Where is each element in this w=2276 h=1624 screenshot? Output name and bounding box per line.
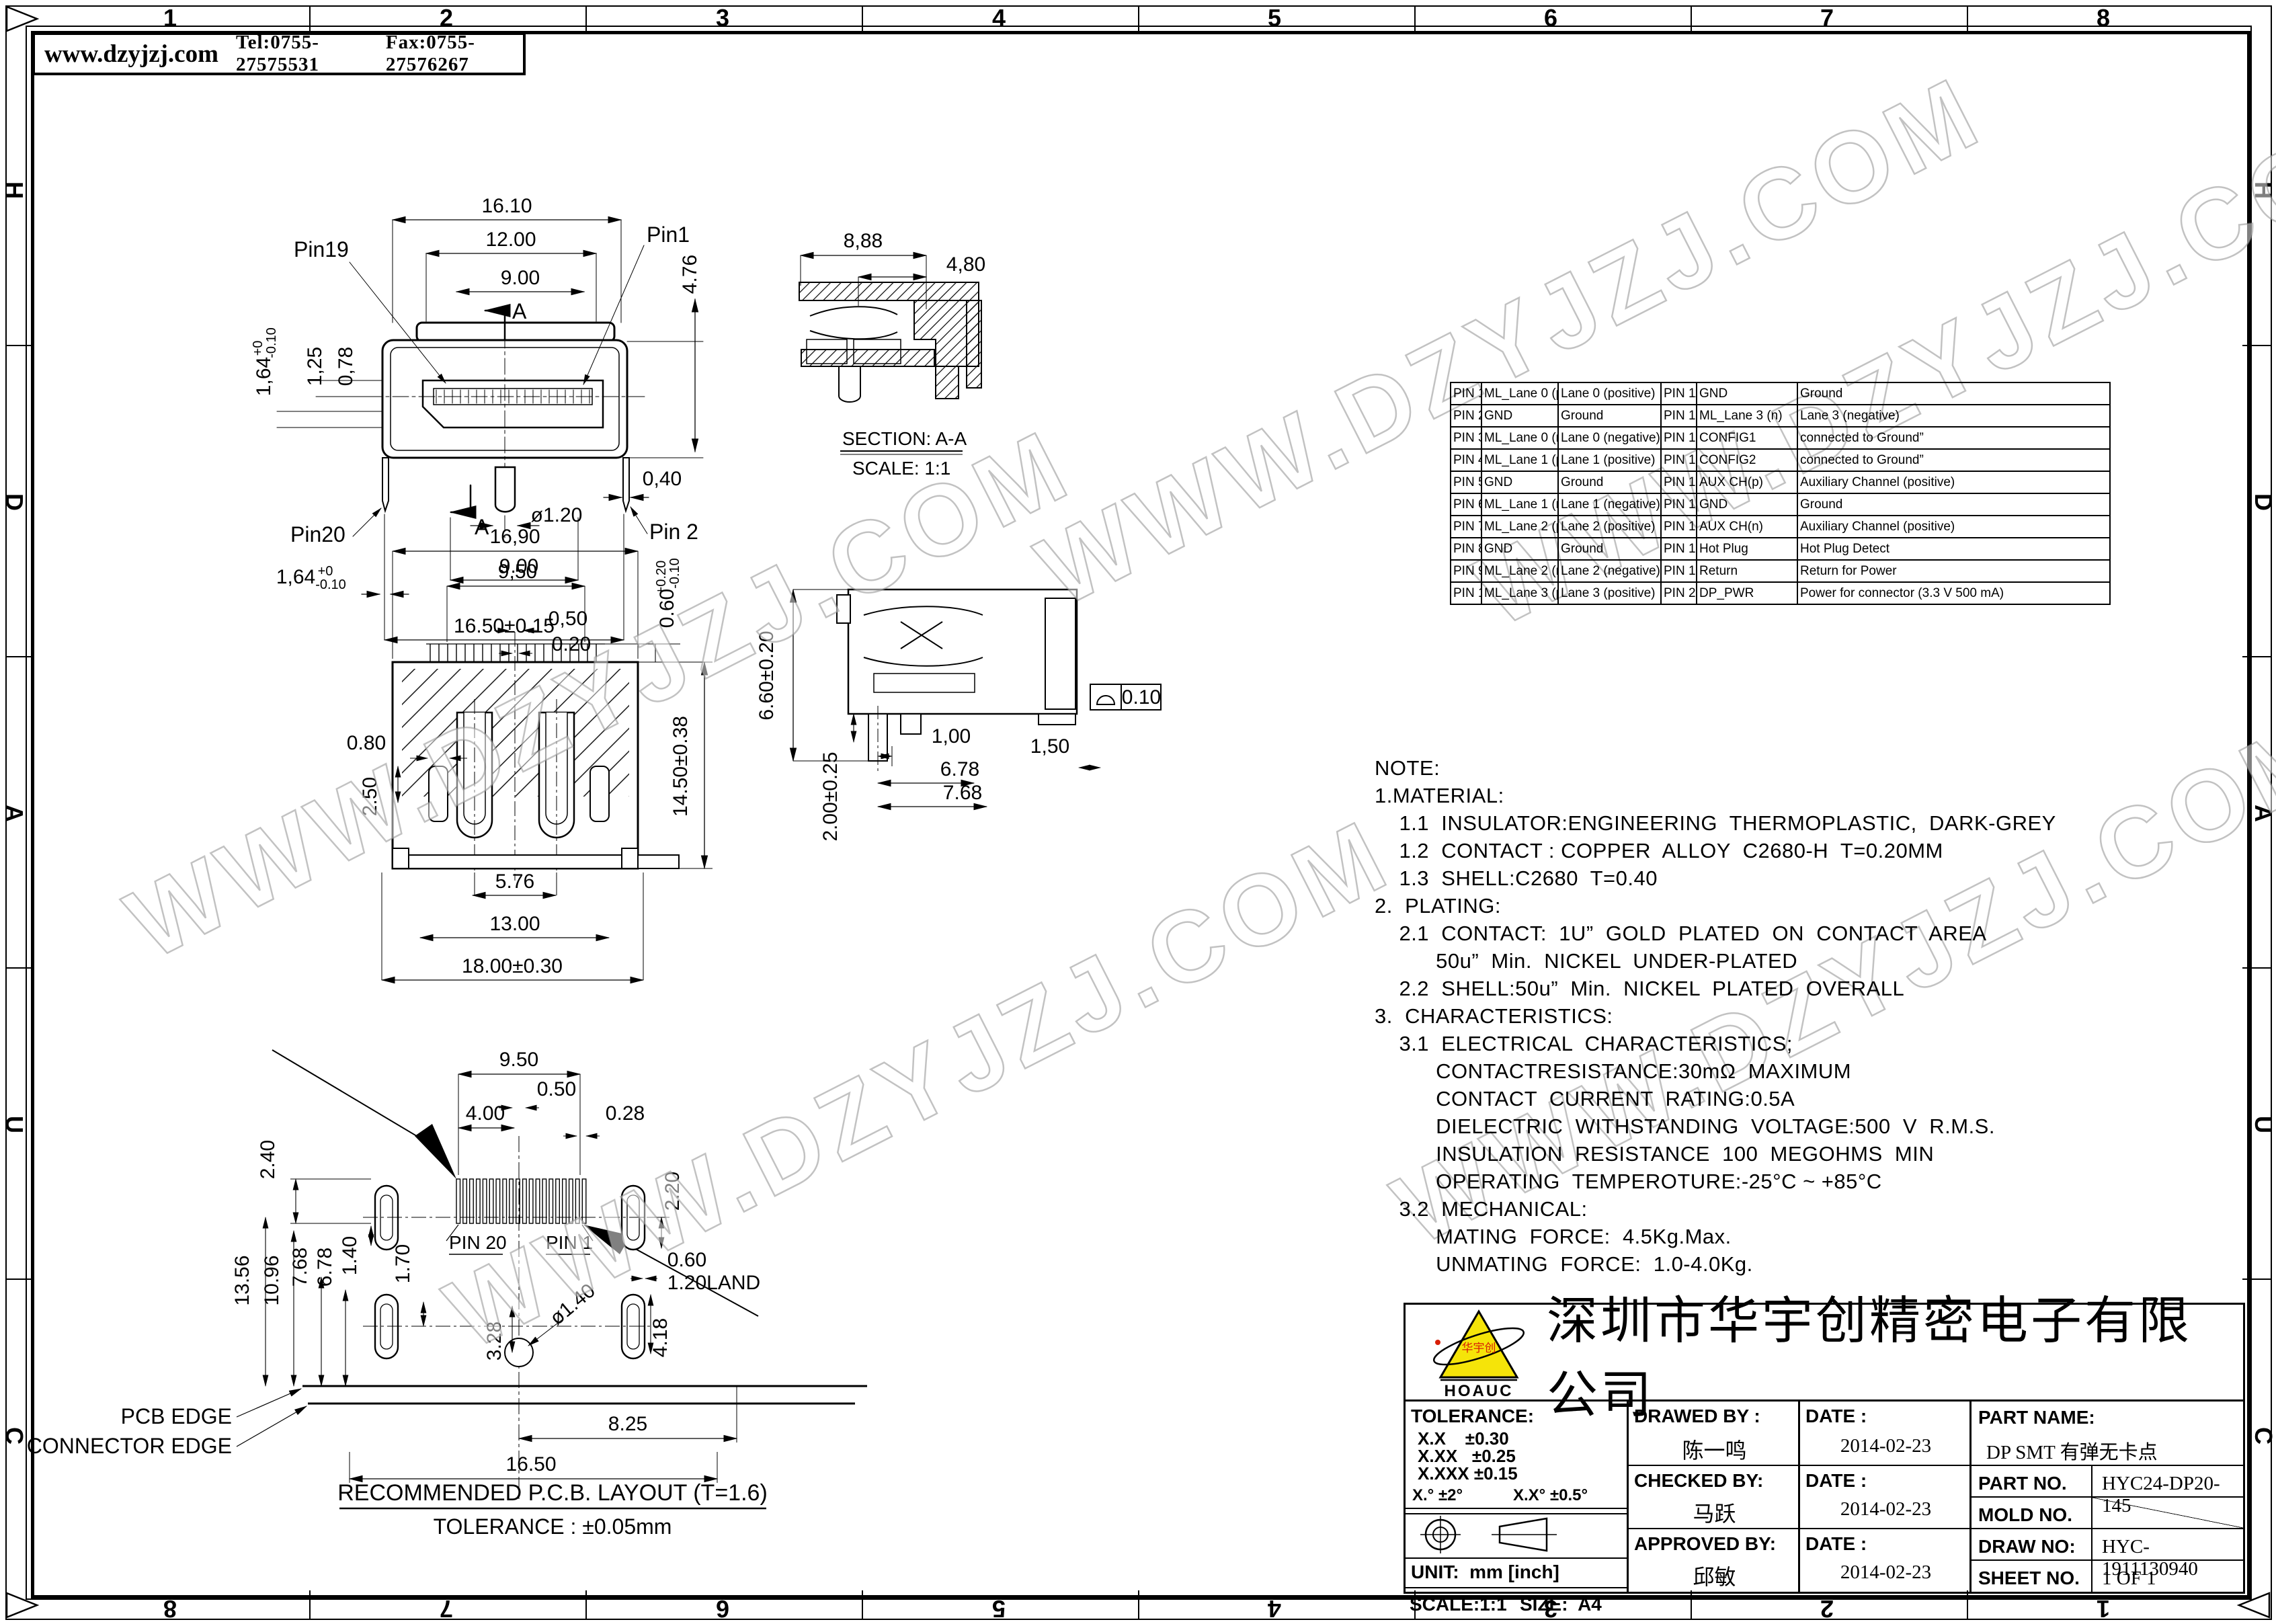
note-line: 50u” Min. NICKEL UNDER-PLATED — [1375, 947, 2248, 975]
note-line: 3.2 MECHANICAL: — [1375, 1195, 2248, 1223]
dim-pcb-1-70: 1.70 — [392, 1244, 414, 1283]
sheet-no-value: 1 OF 1 — [2102, 1568, 2156, 1590]
size-label: SIZE: A4 — [1520, 1594, 1602, 1615]
table-row: PIN 3ML_Lane 0 (n)Lane 0 (negative)PIN 1… — [1451, 427, 2110, 449]
table-row: PIN 2GNDGroundPIN 12ML_Lane 3 (n)Lane 3 … — [1451, 405, 2110, 427]
dim-rear-9-50: 9,50 — [498, 561, 537, 583]
note-line: CONTACTRESISTANCE:30mΩ MAXIMUM — [1375, 1057, 2248, 1085]
checked-by-label: CHECKED BY: — [1634, 1470, 1763, 1492]
label-pin19: Pin19 — [294, 237, 349, 261]
dim-rear-14-50: 14.50±0.38 — [669, 716, 692, 817]
section-view: 8,88 4,80 SECTION: A-A SCALE: 1:1 — [799, 230, 985, 479]
dim-front-9-00-top: 9.00 — [501, 267, 540, 289]
dim-front-0-78: 0,78 — [335, 347, 357, 386]
dim-pcb-4-18: 4.18 — [649, 1318, 672, 1357]
section-caption: SECTION: A-A — [842, 428, 967, 449]
notes-block: NOTE: 1.MATERIAL: 1.1 INSULATOR:ENGINEER… — [1375, 754, 2248, 1278]
tolerance-xxxx: X.XXX ±0.15 — [1418, 1463, 1518, 1484]
dim-section-8-88: 8,88 — [844, 230, 883, 252]
dim-front-12-00: 12.00 — [485, 229, 536, 251]
table-row: PIN 4ML_Lane 1 (p)Lane 1 (positive)PIN 1… — [1451, 449, 2110, 471]
note-line: MATING FORCE: 4.5Kg.Max. — [1375, 1223, 2248, 1250]
angle-tolerance-2: X.X° ±0.5° — [1513, 1486, 1588, 1505]
svg-text:1,64: 1,64 — [253, 357, 275, 396]
note-line: INSULATION RESISTANCE 100 MEGOHMS MIN — [1375, 1140, 2248, 1168]
part-name-value: DP SMT 有弹无卡点 — [1986, 1436, 2158, 1465]
note-line: OPERATING TEMPEROTURE:-25°C ~ +85°C — [1375, 1168, 2248, 1195]
dim-side-7-68: 7.68 — [943, 782, 982, 804]
label-pin20: Pin20 — [290, 522, 346, 546]
approved-by-label: APPROVED BY: — [1634, 1533, 1776, 1555]
date-label-3: DATE : — [1805, 1533, 1867, 1555]
dim-pcb-13-56: 13.56 — [231, 1255, 253, 1305]
dim-front-4-76: 4.76 — [679, 255, 701, 294]
dim-front-16-10: 16.10 — [481, 195, 532, 217]
signatures-column: DRAWED BY : 陈一鸣 CHECKED BY: 马跃 APPROVED … — [1629, 1402, 1800, 1592]
scale-label: SCALE:1:1 — [1410, 1594, 1507, 1615]
note-line: 2.1 CONTACT: 1U” GOLD PLATED ON CONTACT … — [1375, 920, 2248, 947]
company-logo: 华宇创 HOAUC — [1415, 1307, 1543, 1399]
dim-pcb-4-00: 4.00 — [466, 1102, 505, 1125]
dim-section-4-80: 4,80 — [946, 253, 985, 276]
dim-pcb-9-50: 9.50 — [499, 1049, 538, 1071]
dim-rear-5-76: 5.76 — [495, 870, 534, 893]
draw-no-label: DRAW NO: — [1978, 1536, 2076, 1557]
dim-side-1-00: 1,00 — [932, 725, 971, 747]
tolerance-box: TOLERANCE: X.X ±0.30 X.XX ±0.25 X.XXX ±0… — [1406, 1402, 1629, 1592]
dim-pcb-0-50: 0.50 — [537, 1078, 576, 1100]
pcb-caption: RECOMMENDED P.C.B. LAYOUT (T=1.6) — [337, 1480, 768, 1506]
dates-column: DATE : 2014-02-23 DATE : 2014-02-23 DATE… — [1800, 1402, 1972, 1592]
note-line: DIELECTRIC WITHSTANDING VOLTAGE:500 V R.… — [1375, 1112, 2248, 1140]
dim-pcb-6-78: 6.78 — [314, 1248, 336, 1287]
date-value-1: 2014-02-23 — [1800, 1435, 1972, 1457]
note-line: 1.2 CONTACT : COPPER ALLOY C2680-H T=0.2… — [1375, 837, 2248, 864]
svg-text:-0.10: -0.10 — [667, 558, 682, 589]
dim-pcb-2-40: 2.40 — [257, 1140, 279, 1179]
logo-text: HOAUC — [1445, 1382, 1514, 1399]
projection-symbol — [1419, 1514, 1607, 1558]
part-info-column: PART NAME: DP SMT 有弹无卡点 PART NO. HYC24-D… — [1972, 1402, 2243, 1592]
section-arrow-a-bottom: A — [475, 515, 489, 539]
table-row: PIN 6ML_Lane 1 (n)Lane 1 (negative)PIN 1… — [1451, 493, 2110, 516]
dim-front-16-50: 16.50±0.15 — [454, 615, 555, 637]
flatness-callout: 0.10 — [1090, 684, 1161, 710]
table-row: PIN 1ML_Lane 0 (p)Lane 0 (positive)PIN 1… — [1451, 382, 2110, 405]
note-line: 1.MATERIAL: — [1375, 782, 2248, 809]
note-line: 2.2 SHELL:50u” Min. NICKEL PLATED OVERAL… — [1375, 975, 2248, 1002]
label-pin1: Pin1 — [647, 222, 690, 247]
svg-text:-0.10: -0.10 — [315, 577, 346, 592]
dim-pcb-1-20land: 1.20LAND — [667, 1272, 760, 1294]
pcb-tolerance: TOLERANCE : ±0.05mm — [434, 1514, 672, 1539]
dim-pcb-10-96: 10.96 — [261, 1255, 283, 1305]
drawed-by-label: DRAWED BY : — [1634, 1406, 1760, 1427]
angle-tolerance-1: X.° ±2° — [1412, 1486, 1463, 1505]
mold-no-empty — [2092, 1498, 2243, 1529]
part-name-label: PART NAME: — [1978, 1407, 2095, 1428]
checked-by-name: 马跃 — [1629, 1497, 1800, 1528]
dim-rear-0-50: 0,50 — [548, 608, 587, 630]
svg-text:+0: +0 — [251, 341, 266, 356]
dim-rear-13-00: 13.00 — [489, 913, 540, 935]
dim-pcb-8-25: 8.25 — [608, 1413, 647, 1435]
date-value-3: 2014-02-23 — [1800, 1561, 1972, 1584]
sheet-no-label: SHEET NO. — [1978, 1568, 2080, 1589]
dim-front-1-25: 1,25 — [304, 347, 326, 386]
dim-rear-16-90: 16,90 — [489, 526, 540, 548]
drawed-by-name: 陈一鸣 — [1629, 1434, 1800, 1465]
table-row: PIN 5GNDGroundPIN 15AUX CH(p)Auxiliary C… — [1451, 471, 2110, 493]
dim-front-1-64-left: 1,64 +0 -0.10 — [251, 327, 279, 396]
tolerance-title: TOLERANCE: — [1411, 1406, 1534, 1427]
table-row: PIN 9ML_Lane 2 (n)Lane 2 (negative)PIN 1… — [1451, 560, 2110, 582]
company-name: 深圳市华宇创精密电子有限公司 — [1547, 1305, 2243, 1402]
dim-pcb-7-68: 7.68 — [289, 1248, 311, 1287]
title-block: 华宇创 HOAUC 深圳市华宇创精密电子有限公司 TOLERANCE: X.X … — [1404, 1303, 2245, 1594]
svg-text:+0.20: +0.20 — [654, 561, 669, 595]
connector-edge-label: CONNECTOR EDGE — [27, 1434, 232, 1458]
dim-pcb-0-28: 0.28 — [606, 1102, 645, 1125]
table-row: PIN 10ML_Lane 3 (p)Lane 3 (positive)PIN … — [1451, 582, 2110, 604]
date-value-2: 2014-02-23 — [1800, 1498, 1972, 1520]
part-no-label: PART NO. — [1978, 1473, 2067, 1494]
flatness-value: 0.10 — [1122, 686, 1161, 708]
dim-front-0-40: 0,40 — [643, 468, 682, 490]
date-label-2: DATE : — [1805, 1470, 1867, 1492]
section-arrow-a-top: A — [512, 299, 527, 323]
approved-by-name: 邱敏 — [1629, 1560, 1800, 1591]
note-line: 1.1 INSULATOR:ENGINEERING THERMOPLASTIC,… — [1375, 809, 2248, 837]
mold-no-label: MOLD NO. — [1978, 1504, 2072, 1526]
note-line: UNMATING FORCE: 1.0-4.0Kg. — [1375, 1250, 2248, 1278]
dim-front-dia-1-20: ø1.20 — [531, 504, 583, 526]
note-line: 2. PLATING: — [1375, 892, 2248, 920]
label-pin2: Pin 2 — [649, 520, 698, 544]
note-line: 1.3 SHELL:C2680 T=0.40 — [1375, 864, 2248, 892]
dim-front-1-64-bottom: 1,64 +0 -0.10 — [276, 564, 346, 592]
date-label-1: DATE : — [1805, 1406, 1867, 1427]
svg-text:-0.10: -0.10 — [264, 327, 279, 358]
note-line: CONTACT CURRENT RATING:0.5A — [1375, 1085, 2248, 1112]
dim-side-1-50: 1,50 — [1030, 735, 1069, 758]
dim-rear-18-00: 18.00±0.30 — [462, 955, 563, 977]
svg-text:+0: +0 — [318, 564, 333, 579]
note-line: NOTE: — [1375, 754, 2248, 782]
note-line: 3. CHARACTERISTICS: — [1375, 1002, 2248, 1030]
front-view: A A 16.10 12.00 9.00 Pin19 Pin1 4.76 1 — [251, 195, 703, 640]
dim-pcb-1-40: 1.40 — [339, 1236, 361, 1275]
svg-text:1,64: 1,64 — [276, 566, 315, 588]
note-line: 3.1 ELECTRICAL CHARACTERISTICS; — [1375, 1030, 2248, 1057]
pin-assignment-table: PIN 1ML_Lane 0 (p)Lane 0 (positive)PIN 1… — [1450, 382, 2109, 605]
pcb-edge-label: PCB EDGE — [121, 1404, 232, 1428]
drawing-sheet: 1 2 3 4 5 6 7 8 8 7 6 5 4 3 2 1 H D A U … — [0, 0, 2276, 1624]
dim-pcb-16-50: 16.50 — [505, 1453, 556, 1475]
unit-label: UNIT: mm [inch] — [1411, 1561, 1559, 1583]
table-row: PIN 7ML_Lane 2 (p)Lane 2 (positive)PIN 1… — [1451, 516, 2110, 538]
table-row: PIN 8GNDGroundPIN 18Hot PlugHot Plug Det… — [1451, 538, 2110, 560]
dim-side-6-78: 6.78 — [940, 758, 979, 780]
logo-cn-text: 华宇创 — [1462, 1342, 1496, 1354]
dim-side-2-00: 2.00±0.25 — [819, 752, 842, 841]
